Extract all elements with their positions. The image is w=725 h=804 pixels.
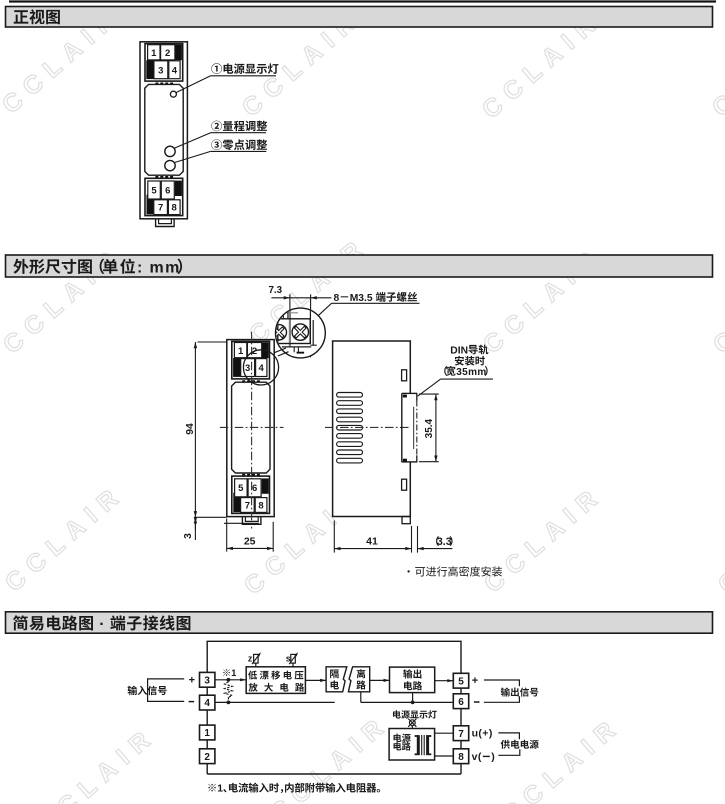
svg-text:2: 2 [165,48,170,59]
svg-text:mm: mm [150,259,181,276]
svg-text:8: 8 [172,203,177,214]
svg-text:4: 4 [204,698,210,709]
svg-text:z: z [248,653,253,663]
svg-text:1: 1 [217,784,223,795]
svg-text:7: 7 [458,729,464,740]
svg-text:35.4: 35.4 [424,418,435,438]
svg-text:3: 3 [204,675,210,686]
svg-text:5: 5 [151,185,157,196]
svg-text:3: 3 [245,363,250,374]
svg-text:CCLAIR: CCLAIR [0,479,130,598]
svg-text:1: 1 [238,346,244,357]
svg-text:CCLAIR: CCLAIR [497,711,627,804]
svg-text:v(: v( [472,751,482,763]
svg-text:3.3: 3.3 [437,536,452,548]
svg-text:25: 25 [244,535,256,547]
svg-text:7: 7 [158,203,163,214]
svg-text:2: 2 [204,752,210,763]
svg-text:8: 8 [258,500,263,511]
svg-text:4: 4 [259,363,265,374]
svg-text:1: 1 [204,728,210,739]
svg-text:): ) [491,751,495,763]
svg-text:CCLAIR: CCLAIR [32,721,162,804]
svg-text:8: 8 [458,752,464,763]
svg-text:5: 5 [458,676,464,687]
svg-text:6: 6 [165,185,170,196]
svg-text:DIN: DIN [450,345,468,356]
svg-text:7: 7 [245,500,250,511]
svg-text:+: + [189,675,195,687]
svg-text:3: 3 [183,533,194,539]
svg-text:8: 8 [334,293,340,304]
svg-text:·: · [99,616,105,633]
svg-text:5: 5 [238,483,244,494]
svg-text:41: 41 [366,536,378,548]
svg-text:M3.5: M3.5 [350,293,373,304]
svg-text:s: s [286,653,291,663]
svg-text:u(+): u(+) [472,728,493,740]
svg-text:CCLAIR: CCLAIR [479,480,609,599]
svg-text:7.3: 7.3 [268,285,282,296]
svg-text:CCLAIR: CCLAIR [713,481,725,600]
svg-text:4: 4 [172,65,178,76]
svg-text:+: + [472,675,478,687]
svg-text:35mm: 35mm [456,367,487,378]
svg-text:1: 1 [231,668,236,678]
svg-text:6: 6 [458,697,464,708]
svg-text:94: 94 [185,423,196,435]
svg-text:3: 3 [158,65,163,76]
svg-text::: : [137,259,144,276]
svg-text:6: 6 [252,483,257,494]
svg-text:1: 1 [151,48,157,59]
